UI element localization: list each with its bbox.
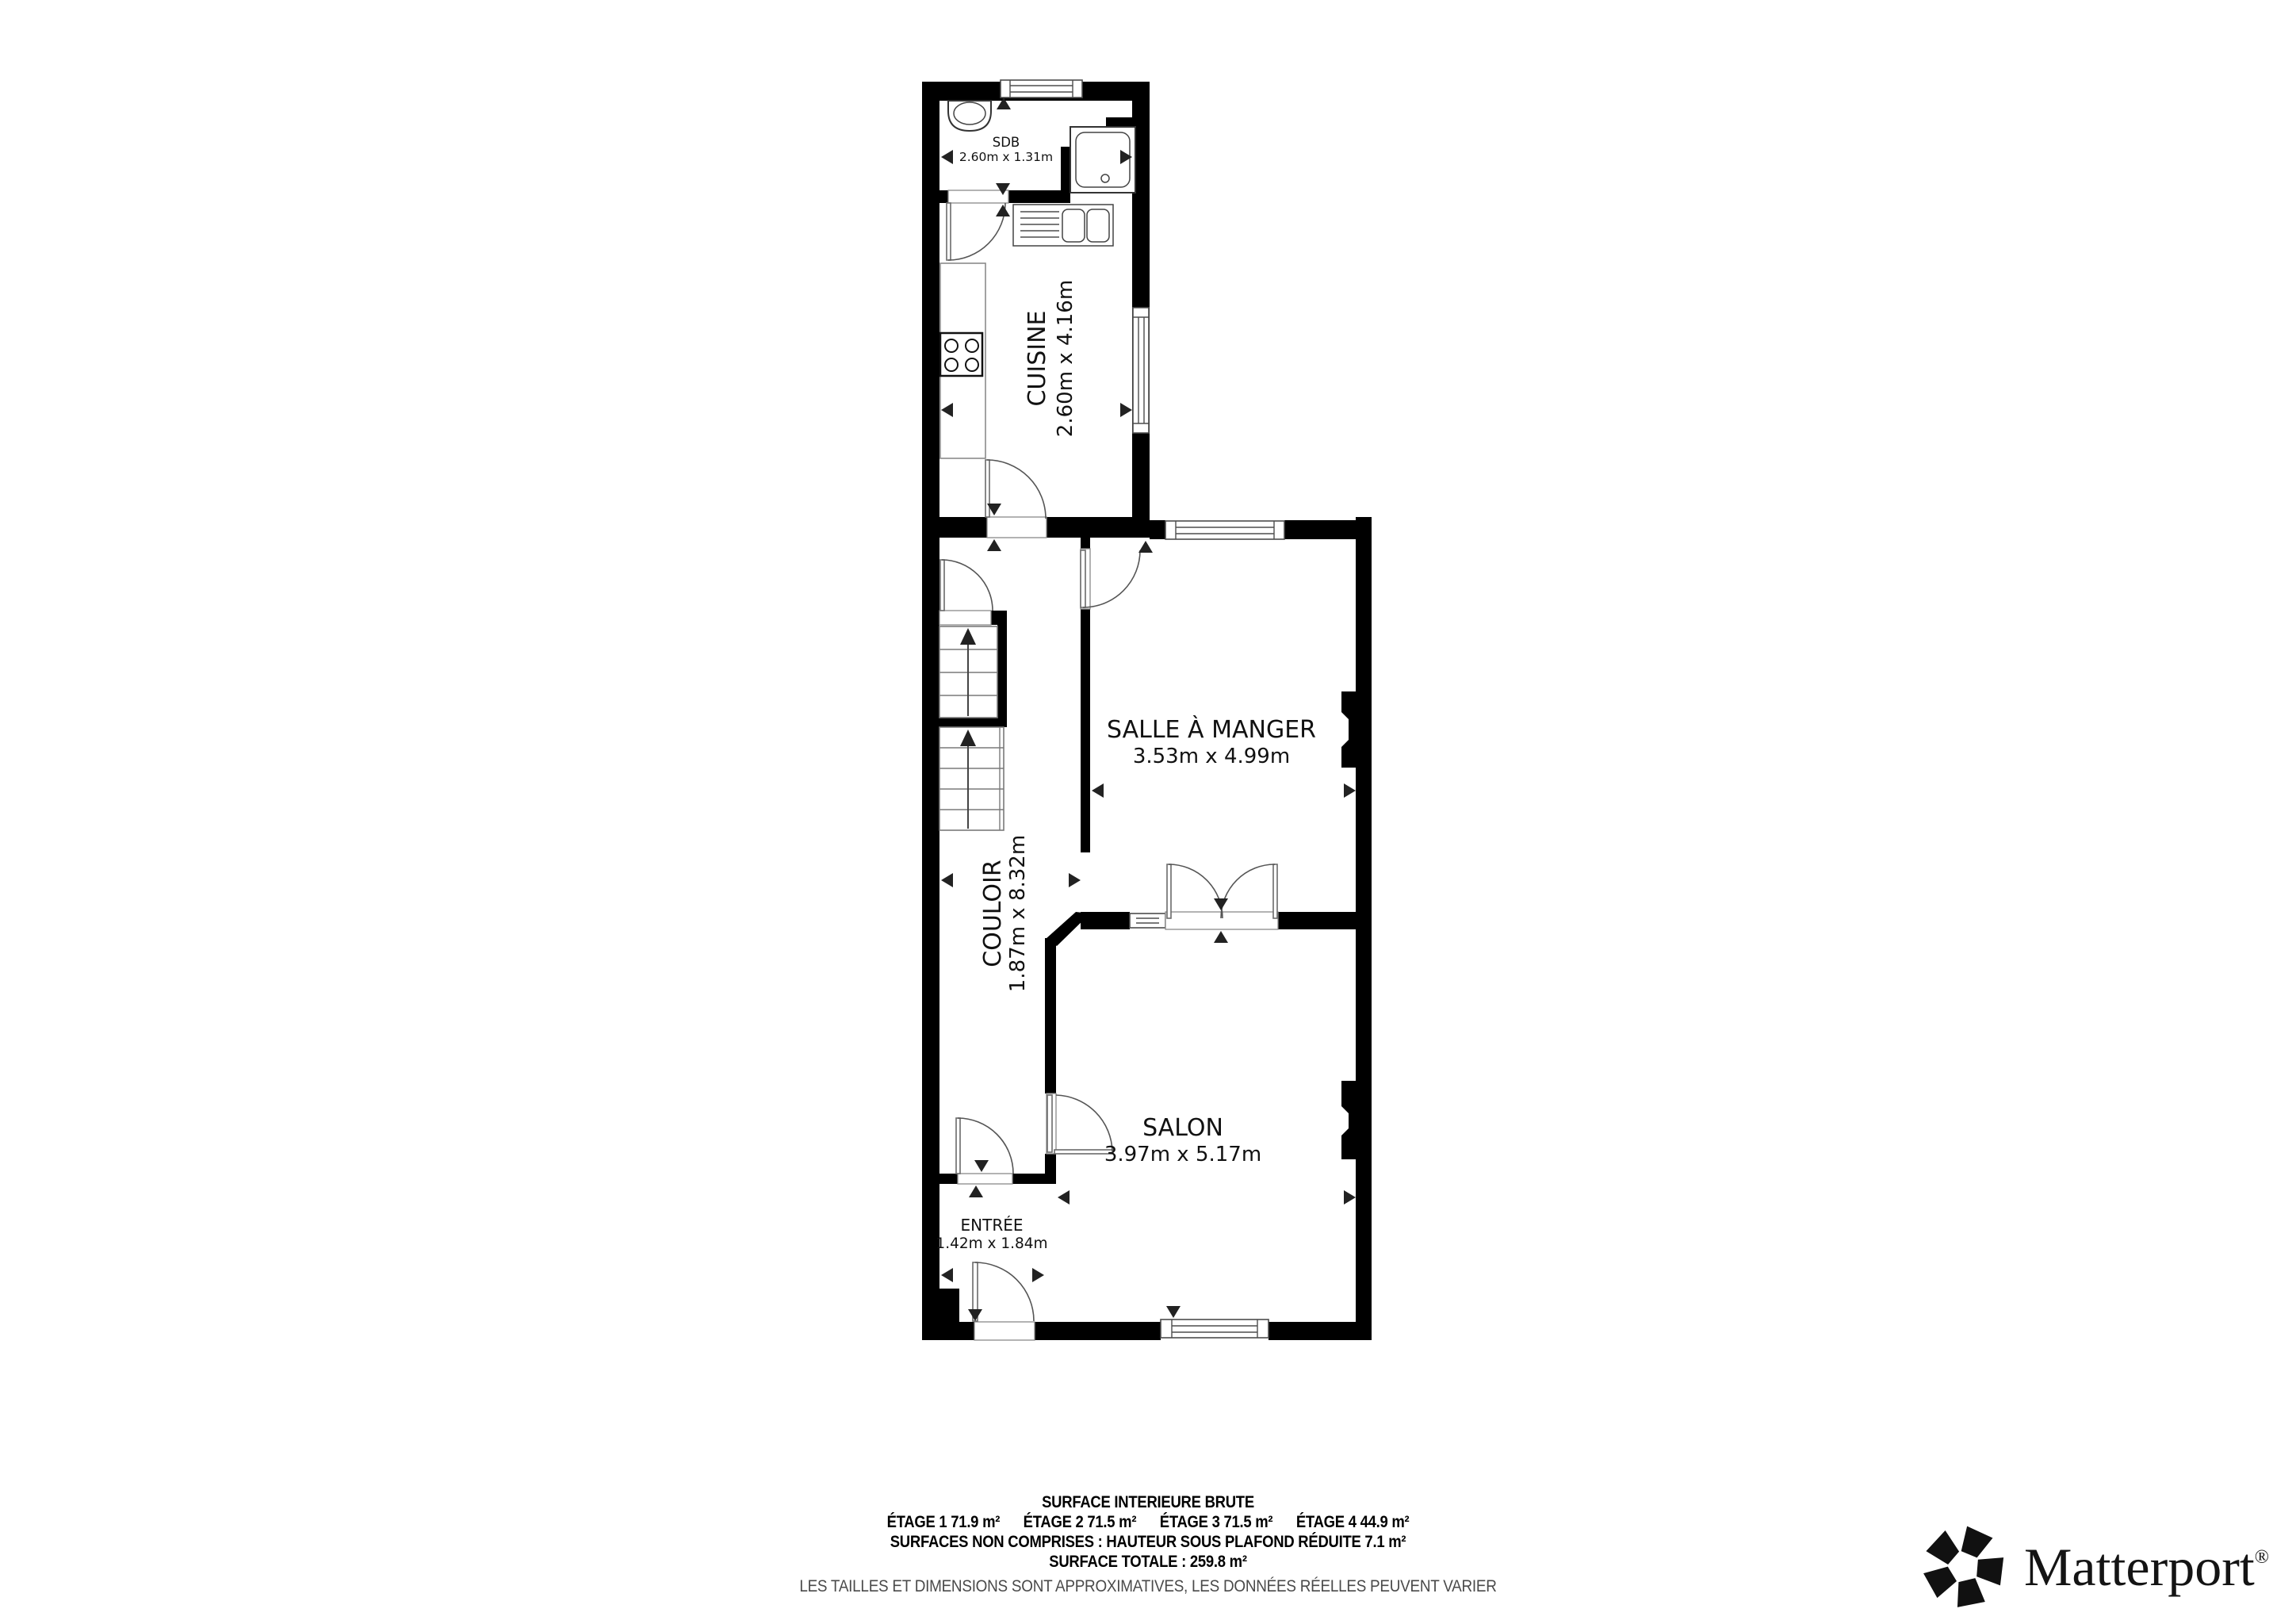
door-couloir-salon	[1047, 1095, 1113, 1154]
brand-name: Matterport	[2024, 1537, 2255, 1597]
room-label-sdb: SDB	[993, 135, 1020, 150]
window-salon-bottom	[1161, 1319, 1269, 1338]
door-front-entrance	[968, 1262, 1034, 1321]
window-sdb-top	[1001, 80, 1082, 98]
surface-total: SURFACE TOTALE : 259.8 m²	[138, 1552, 2158, 1572]
surface-etages: ÉTAGE 1 71.9 m² ÉTAGE 2 71.5 m² ÉTAGE 3 …	[138, 1512, 2158, 1532]
matterport-logo: Matterport®	[1918, 1521, 2269, 1613]
kitchen-sink	[1013, 205, 1113, 246]
room-dims-salle-a-manger: 3.53m x 4.99m	[1133, 745, 1290, 768]
window-cuisine-right	[1133, 308, 1149, 433]
room-label-cuisine: CUISINE	[1024, 310, 1051, 406]
matterport-logo-text: Matterport®	[2024, 1540, 2269, 1594]
bathroom-basin	[948, 101, 991, 131]
room-dims-salon: 3.97m x 5.17m	[1104, 1143, 1261, 1166]
double-door-dining-salon	[1167, 864, 1277, 918]
door-stairs	[940, 560, 993, 611]
room-label-couloir: COULOIR	[979, 860, 1007, 967]
surface-title: SURFACE INTERIEURE BRUTE	[138, 1492, 2158, 1512]
registered-mark: ®	[2255, 1547, 2269, 1568]
etage-4: ÉTAGE 4 44.9 m²	[1296, 1512, 1410, 1532]
disclaimer: LES TAILLES ET DIMENSIONS SONT APPROXIMA…	[138, 1576, 2158, 1596]
matterport-logo-icon	[1918, 1521, 2010, 1613]
floorplan-page: SDB 2.60m x 1.31m CUISINE 2.60m x 4.16m …	[0, 0, 2296, 1624]
door-sdb	[947, 203, 1005, 260]
etage-3: ÉTAGE 3 71.5 m²	[1160, 1512, 1273, 1532]
room-dims-entree: 1.42m x 1.84m	[936, 1235, 1047, 1252]
surface-summary: SURFACE INTERIEURE BRUTE ÉTAGE 1 71.9 m²…	[138, 1492, 2158, 1596]
staircase	[939, 626, 1004, 830]
room-label-salle-a-manger: SALLE À MANGER	[1107, 715, 1316, 744]
window-dining-salon-sidelight	[1130, 913, 1165, 928]
room-dims-cuisine: 2.60m x 4.16m	[1054, 280, 1077, 437]
room-label-salon: SALON	[1142, 1114, 1223, 1142]
etage-1: ÉTAGE 1 71.9 m²	[887, 1512, 1001, 1532]
room-dims-couloir: 1.87m x 8.32m	[1006, 835, 1030, 992]
room-dims-sdb: 2.60m x 1.31m	[959, 150, 1053, 164]
room-label-entree: ENTRÉE	[961, 1216, 1024, 1235]
floorplan-drawing: SDB 2.60m x 1.31m CUISINE 2.60m x 4.16m …	[0, 0, 2296, 1624]
window-dining-top	[1165, 521, 1284, 539]
surface-exclusions: SURFACES NON COMPRISES : HAUTEUR SOUS PL…	[138, 1532, 2158, 1552]
etage-2: ÉTAGE 2 71.5 m²	[1024, 1512, 1137, 1532]
kitchen-stove	[940, 333, 982, 376]
